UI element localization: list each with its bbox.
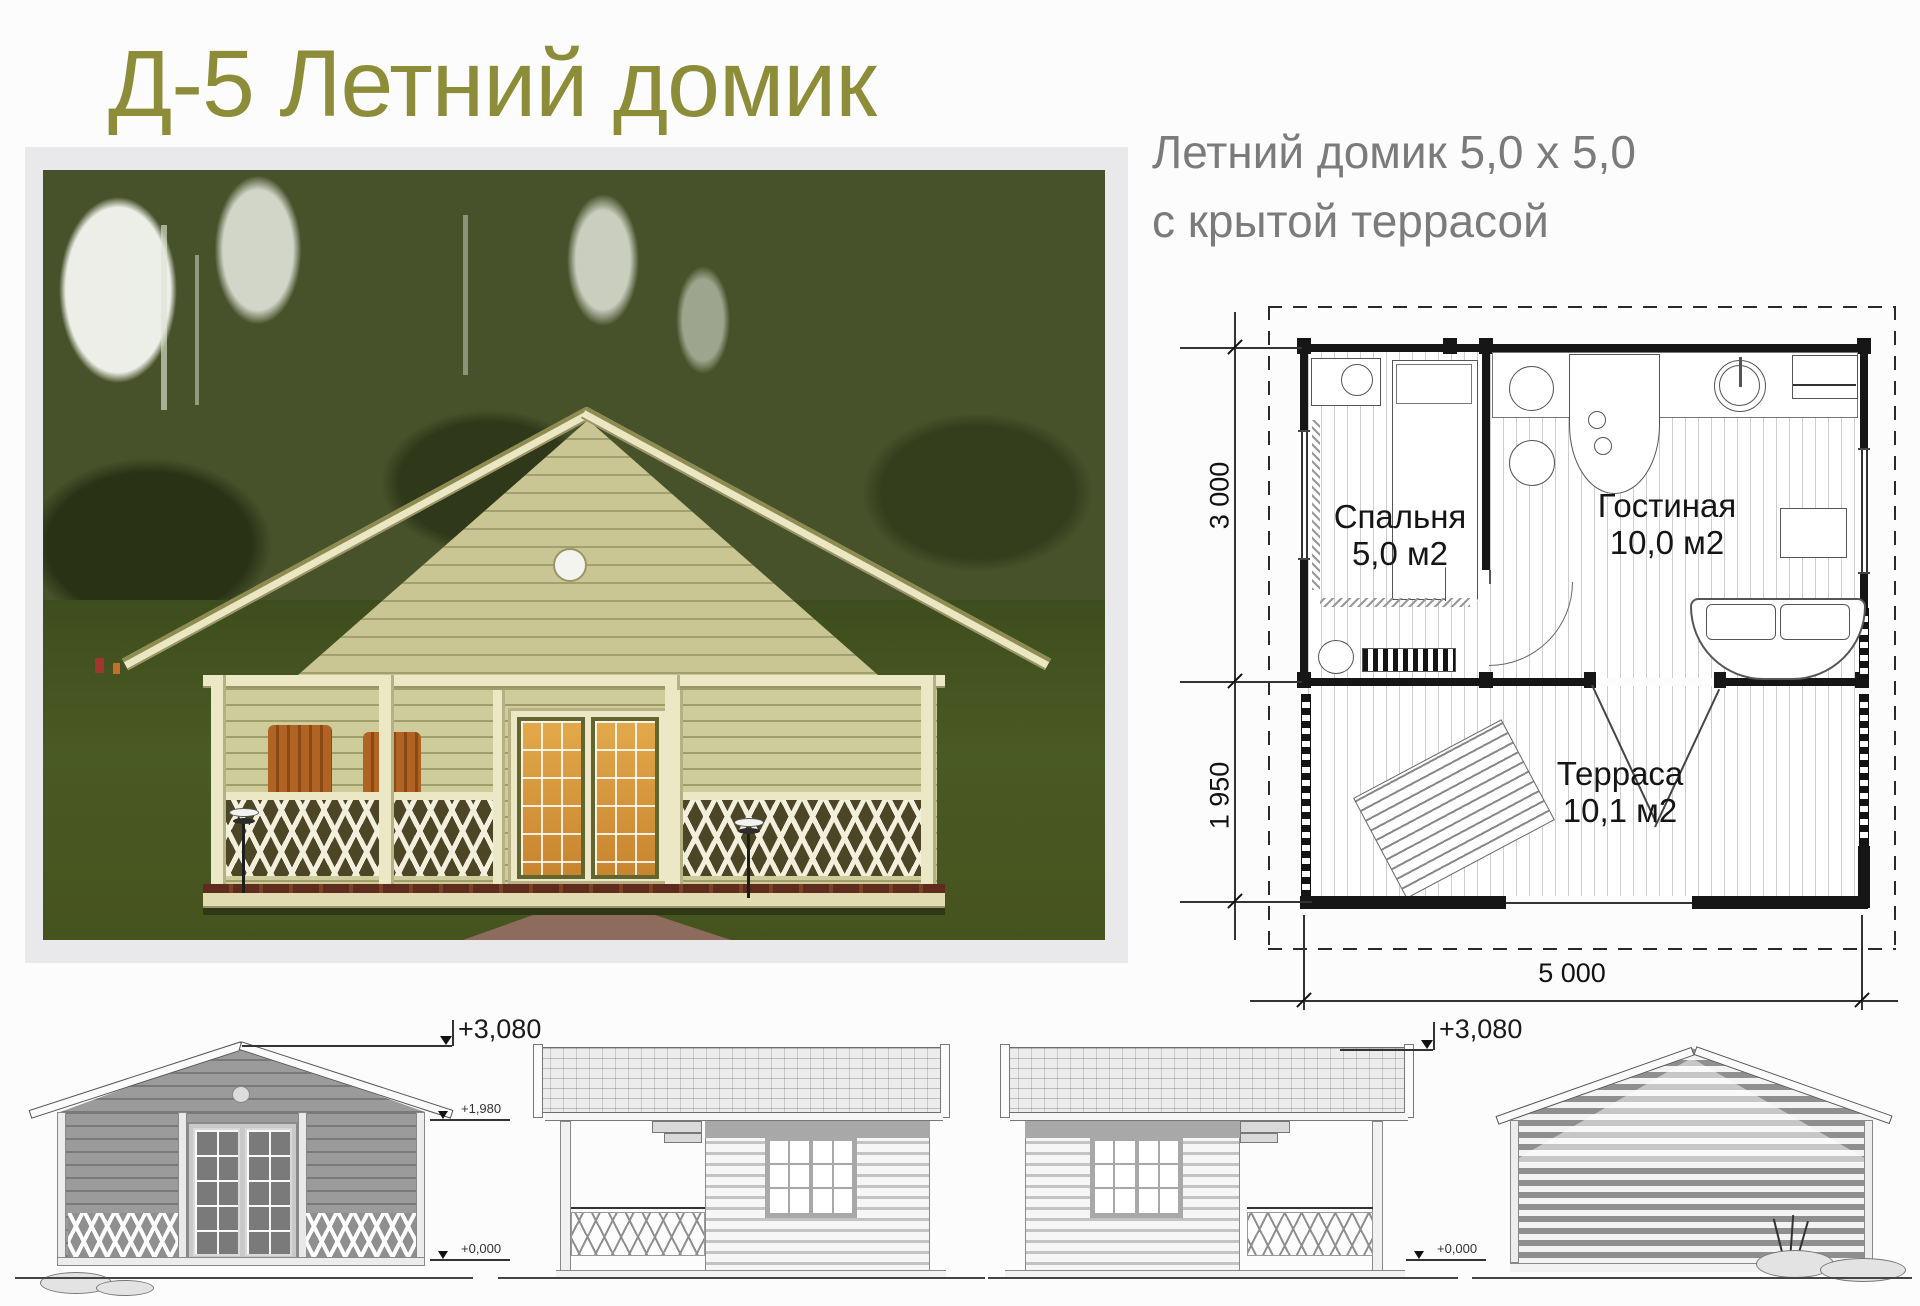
catalog-page: Д-5 Летний домик Летний домик 5,0 х 5,0 … [0,0,1920,1306]
ground-line [1472,1277,1912,1279]
elevation-rear [0,0,1920,1306]
corner-trim [1864,1120,1873,1263]
corner-trim [1510,1120,1519,1263]
